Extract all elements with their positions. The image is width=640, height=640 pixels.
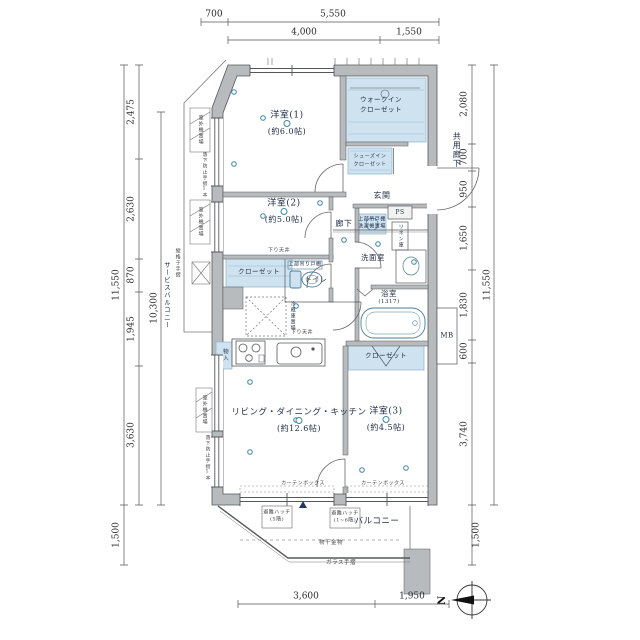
ps-label: PS [395, 209, 404, 215]
toilet-tank [290, 271, 301, 288]
washer-label-1: 上部吊戸棚 [358, 217, 386, 222]
kitchen-counter [232, 339, 325, 366]
lowered-ceiling-label-2: 下り天井 [291, 330, 313, 335]
bedroom3-size: (約4.5帖) [367, 424, 405, 432]
bedroom1-label: 洋室(1) [270, 111, 303, 120]
hatch2-label-2: (1~6階) [334, 518, 356, 523]
fridge-label: 冷蔵庫置場 [289, 301, 294, 331]
linen-label: リネン庫 [397, 224, 402, 248]
dim-top-1550: 1,550 [396, 28, 422, 37]
mb-label: MB [440, 332, 453, 339]
storage-label: 物入 [221, 349, 227, 362]
dim-left-11550: 11,550 [112, 269, 121, 301]
balcony-label: バルコニー [355, 518, 400, 527]
dim-right-1650: 1,650 [460, 225, 469, 251]
wall-ticks [268, 58, 419, 65]
ldk-size: (約12.6帖) [277, 425, 321, 433]
dim-right-950: 950 [460, 180, 469, 197]
bathtub [361, 308, 425, 338]
curtain-boxes [240, 486, 428, 492]
glass-rail-label: ガラス手摺 [326, 561, 356, 567]
floorplan: 700 5,550 4,000 1,550 3,600 1,950 2,475 … [0, 0, 640, 640]
dim-left-2630: 2,630 [127, 196, 136, 222]
outdoor-unit-label-3: 室外機置場 [201, 395, 206, 425]
sic-label-1: シューズイン [354, 154, 387, 159]
hatch2-label-1: 避難ハッチ [331, 511, 359, 516]
dim-right-3740: 3,740 [460, 421, 469, 447]
dim-bottom-3600: 3,600 [293, 592, 319, 601]
dim-left-870: 870 [127, 266, 136, 283]
dim-left-1945: 1,945 [127, 316, 136, 342]
wic-label-2: クローゼット [360, 107, 402, 114]
fridge-space [246, 297, 286, 336]
washer-label-2: 洗濯機置場 [358, 224, 386, 229]
hatch1-label-2: (5階) [270, 517, 284, 522]
toilet-label: トイレ [305, 276, 328, 283]
wic-label-1: ウォークイン [360, 97, 402, 104]
dim-left-1500: 1,500 [112, 522, 121, 548]
dim-right-1830: 1,830 [460, 292, 469, 318]
fall-rail-label-1: 落下防止手摺1本 [201, 152, 206, 199]
ldk-label: リビング・ダイニング・キッチン [231, 409, 366, 418]
laundry-hw-label: 物干金物 [319, 541, 343, 547]
dim-right-700: 700 [460, 148, 469, 165]
service-balcony-label: サービスバルコニー [163, 261, 170, 329]
lattice-rail-label: 縦格子手摺 [174, 248, 179, 278]
sic-label-2: クローゼット [353, 162, 386, 167]
dim-top-4000: 4,000 [291, 28, 317, 37]
fall-rail-label-2: 落下防止手摺1本 [204, 435, 209, 482]
bedroom2-label: 洋室(2) [267, 199, 300, 208]
dim-right-1500: 1,500 [472, 522, 481, 548]
hallway-label: 廊下 [336, 220, 353, 228]
hatch1-label-1: 避難ハッチ [263, 510, 291, 515]
dim-right-11550: 11,550 [483, 269, 492, 301]
entrance-door [437, 168, 479, 210]
closet3-label: クローゼット [365, 353, 407, 360]
dim-left-2475: 2,475 [127, 99, 136, 125]
outdoor-unit-label-1: 室外機置場 [197, 115, 202, 145]
bedroom2-size: (約5.0帖) [265, 216, 303, 224]
vanity [396, 250, 426, 283]
compass-icon [451, 581, 491, 619]
entrance-label: 玄関 [374, 192, 391, 200]
dim-right-600: 600 [460, 342, 469, 359]
closet2-label: クローゼット [238, 269, 280, 276]
dim-left-10300: 10,300 [150, 292, 159, 324]
curtain-box-label-1: カーテンボックス [281, 481, 325, 486]
dim-top-5550: 5,550 [320, 10, 346, 19]
dim-bottom-1950: 1,950 [399, 592, 425, 601]
curtain-box-label-2: カーテンボックス [361, 481, 405, 486]
outdoor-unit-label-2: 室外機置場 [197, 207, 202, 237]
bathroom-size: (1317) [378, 300, 399, 306]
dim-top-700: 700 [205, 10, 222, 19]
bath-folding-door [357, 289, 373, 296]
bedroom3-label: 洋室(3) [369, 407, 402, 416]
dim-right-2080: 2,080 [460, 91, 469, 117]
lowered-ceiling-label-1: 下り天井 [268, 248, 290, 253]
dim-left-3630: 3,630 [127, 422, 136, 448]
washroom-label: 洗面室 [361, 254, 385, 262]
bathroom-label: 浴室 [381, 290, 397, 298]
bedroom1-size: (約6.0帖) [268, 128, 306, 136]
toilet-cabinet-label: 上部吊り戸棚 [288, 262, 321, 267]
compass-north-label: N [438, 595, 449, 605]
common-corridor-label: 共用廊下 [452, 132, 460, 168]
balcony-rails [218, 501, 410, 562]
